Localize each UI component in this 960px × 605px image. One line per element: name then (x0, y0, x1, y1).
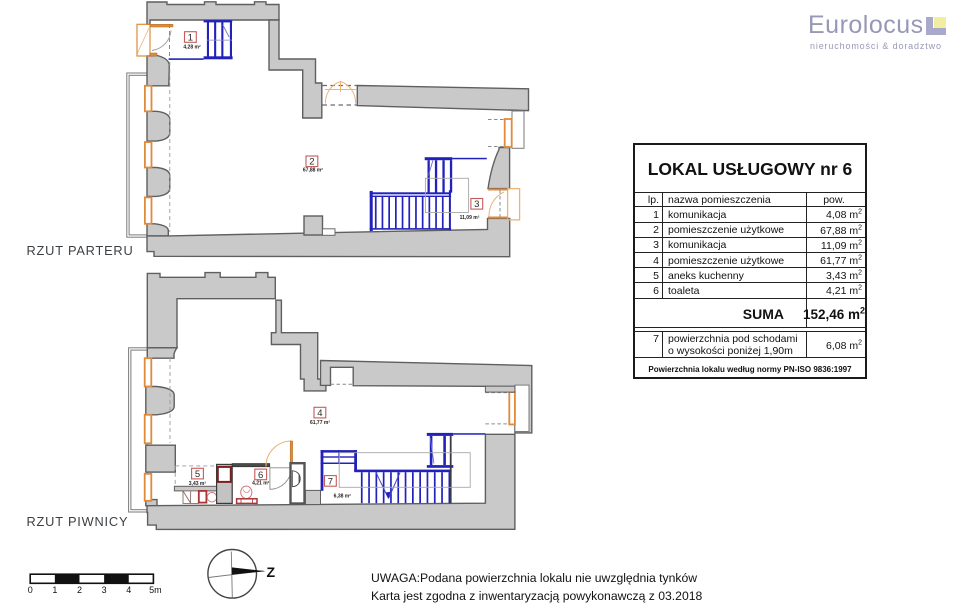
svg-text:61,77 m²: 61,77 m² (310, 420, 330, 426)
svg-text:0: 0 (28, 585, 33, 595)
svg-text:3: 3 (102, 585, 107, 595)
svg-text:4,21 m²: 4,21 m² (252, 480, 270, 486)
svg-text:11,09 m²: 11,09 m² (460, 215, 480, 221)
svg-text:1: 1 (188, 32, 193, 43)
svg-text:Z: Z (267, 564, 276, 580)
svg-text:67,88 m²: 67,88 m² (303, 168, 323, 174)
svg-text:4: 4 (317, 408, 322, 419)
svg-text:4,28 m²: 4,28 m² (183, 44, 201, 50)
svg-text:3,43 m²: 3,43 m² (189, 481, 207, 487)
svg-text:1: 1 (52, 585, 57, 595)
svg-text:6: 6 (258, 470, 263, 481)
svg-text:4: 4 (126, 585, 131, 595)
svg-text:6,38 m²: 6,38 m² (334, 494, 352, 500)
svg-text:2: 2 (309, 157, 314, 168)
svg-text:5m: 5m (149, 585, 162, 595)
svg-text:2: 2 (77, 585, 82, 595)
svg-text:7: 7 (328, 476, 333, 487)
svg-text:5: 5 (195, 469, 200, 480)
svg-text:3: 3 (474, 199, 479, 210)
